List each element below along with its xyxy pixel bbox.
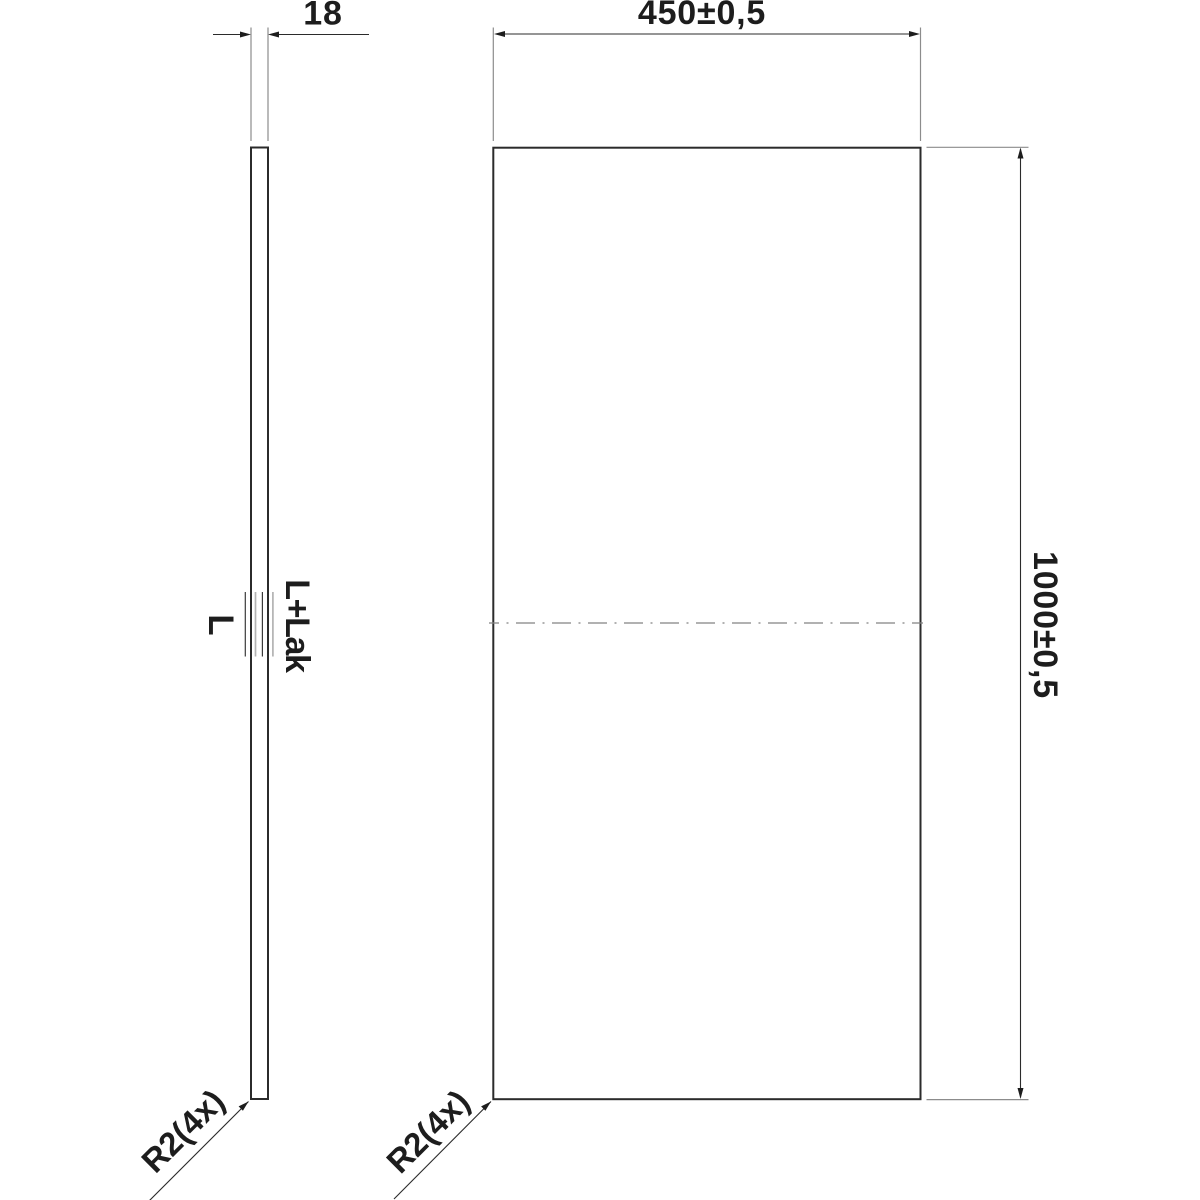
svg-text:L+Lak: L+Lak xyxy=(278,579,316,673)
svg-text:L: L xyxy=(201,614,240,635)
svg-text:450±0,5: 450±0,5 xyxy=(638,0,766,32)
svg-text:18: 18 xyxy=(303,0,342,33)
svg-text:1000±0,5: 1000±0,5 xyxy=(1026,551,1064,699)
